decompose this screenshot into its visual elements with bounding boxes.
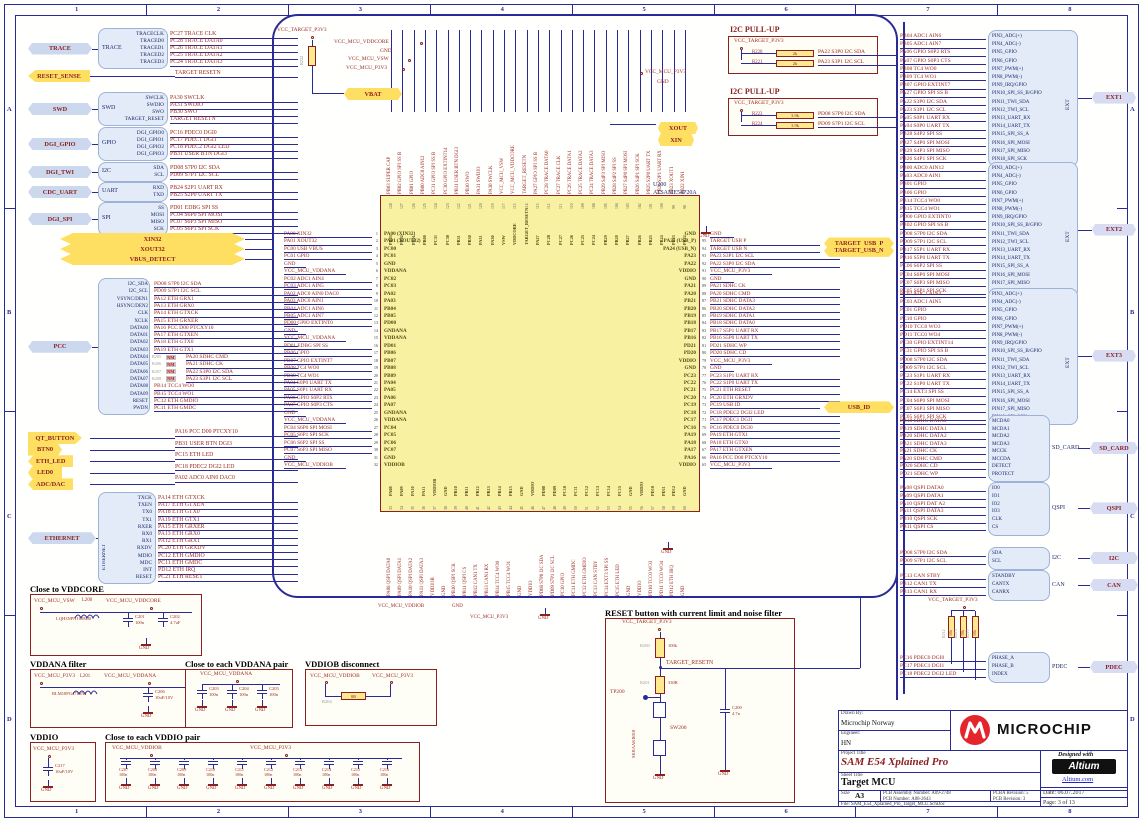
net-label: PA21 SDHC CK: [900, 448, 986, 455]
ext-pin-label: PIN10_SPI_SS_B/GPIO: [992, 91, 1042, 96]
ext-pin-label: PIN6_GPIO: [992, 317, 1017, 322]
resistor[interactable]: 3.9k: [776, 112, 814, 119]
wire: [325, 696, 341, 697]
zone-tick: [146, 4, 147, 15]
pin-number: 110: [571, 197, 575, 209]
pin-number: 91: [702, 269, 706, 273]
conn-pin-label: IO3: [992, 509, 1000, 514]
rail-terminal: [420, 42, 423, 45]
pin-number: 98: [684, 197, 688, 209]
net-label: PC24 TRACE DATA3: [170, 59, 298, 67]
vertical-net-label: VCC_MCU_VSW: [501, 112, 506, 194]
mcu-pin-name: PC04: [384, 426, 396, 431]
gnd-label: GND: [225, 708, 235, 713]
net-label: PC03 ADC1 AIN5: [900, 299, 986, 306]
ext-pin-label: PIN13_UART_RX: [992, 116, 1030, 121]
net-label: PA06 GPIO S0P2 RTS: [900, 49, 986, 56]
net-label: PB21 SDHC DATA3: [710, 298, 840, 305]
resistor-ref: R207: [152, 370, 161, 374]
mcu-pin-name: PB10: [454, 462, 458, 496]
flag-qt-button[interactable]: QT_BUTTON: [28, 432, 82, 444]
zone-tick: [288, 4, 289, 15]
resistor[interactable]: 2k: [776, 50, 814, 57]
pin-name: SCL: [100, 173, 164, 179]
mcu-pin-name: PA31: [479, 211, 483, 245]
wire: [213, 758, 214, 760]
pin-number: 58: [663, 498, 667, 510]
pin-number: 48: [554, 498, 558, 510]
pin-number: 94: [702, 247, 706, 251]
mcu-pin-name: PB30: [468, 211, 472, 245]
mcu-pin-name: PC23: [638, 374, 696, 379]
flag-btn0[interactable]: BTN0: [28, 444, 62, 456]
vertical-net-label: PA11 QSPI DATA3: [421, 516, 426, 596]
wire: [128, 622, 129, 627]
power-rail-label: VCC_MCU_VDDANA: [200, 672, 252, 678]
mcu-pin-name: VDDIO: [638, 359, 696, 364]
power-rail-label: VCC_MCU_VDDCORE: [106, 599, 161, 605]
pin-name: DATA05: [98, 362, 148, 367]
net-label: PB05 ADC1 AIN7: [900, 41, 986, 48]
wire: [245, 239, 272, 240]
net-label: PA19 ETH GTX1: [710, 432, 840, 439]
resistor[interactable]: 0R: [341, 692, 366, 700]
mcu-pin-name: PB07: [384, 359, 396, 364]
net-label: PB29 S4P3 SPI MISO: [900, 148, 986, 155]
vertical-net-label: PB02 GPIO SPI SS B: [399, 112, 404, 194]
switch[interactable]: [653, 702, 666, 718]
pin-name: DATA04: [98, 355, 148, 360]
resistor[interactable]: [308, 46, 316, 66]
vertical-net-label: TARGET_RESETN: [524, 112, 529, 194]
vertical-net-label: PA10 QSPI DATA2: [410, 516, 415, 596]
vertical-net-label: GND: [628, 516, 633, 596]
net-label: PA17 ETH GTXEN: [154, 332, 298, 339]
net-label: PB07 GPIO EXTINT7: [900, 82, 986, 89]
capacitor-ref: C206: [155, 690, 165, 695]
resistor[interactable]: [655, 676, 665, 694]
vertical-net-label: PC31 GPIO SPI SS B: [433, 112, 438, 194]
pin-number: 109: [582, 197, 586, 209]
mcu-pin-name: PD21: [638, 344, 696, 349]
wire: [184, 758, 185, 760]
resistor-value: 100k: [668, 644, 677, 649]
net-label: PB28 S4P2 SPI SS: [900, 131, 986, 138]
bus-line: [896, 560, 898, 700]
flag-adc-dac[interactable]: ADC/DAC: [28, 478, 73, 490]
net-label: PA22 S3P0 I2C SDA: [900, 99, 986, 106]
capacitor-ref: C204: [239, 687, 249, 692]
vertical-net-label: PC26 TRACE DATA1: [569, 112, 574, 194]
wire: [390, 684, 391, 696]
wire: [266, 761, 276, 762]
wire: [143, 693, 153, 694]
vertical-net-label: PA30 SWCLK: [490, 112, 495, 194]
wire: [242, 758, 243, 760]
pin-name: TRACED2: [100, 53, 164, 59]
pin-name: MDC: [104, 561, 152, 567]
pin-name: INT: [104, 568, 152, 574]
net-label: PB06 GPIO: [900, 190, 986, 197]
net-label: VCC_MCU_VDDANA: [284, 417, 346, 424]
wire: [1078, 667, 1090, 668]
pin-number: 24: [370, 403, 378, 407]
vertical-net-label: PC13 CAN STBY: [595, 516, 600, 596]
pin-number: 77: [702, 374, 706, 378]
ext-pin-label: PIN11_TWI_SDA: [992, 100, 1029, 105]
ext-pin-label: PIN6_GPIO: [992, 191, 1017, 196]
conn-pin-label: CANTX: [992, 582, 1009, 587]
net-label: PB00 ADC0 AIN12: [900, 165, 986, 172]
switch-part: SKRAAKB010: [632, 700, 637, 758]
ext-pin-label: PIN3_ADC(+): [992, 292, 1022, 297]
mcu-pin-name: PC19: [638, 403, 696, 408]
net-label: PA01 XOUT32: [284, 238, 372, 245]
flag-pcc[interactable]: PCC: [28, 341, 92, 353]
net-label: GND: [710, 231, 734, 238]
mcu-pin-name: PC18: [638, 411, 696, 416]
net-label: PA02 ADC0 AIN0 DAC0: [175, 475, 298, 483]
mcu-pin-name: PA10: [411, 462, 415, 496]
wire: [741, 63, 776, 64]
wire: [527, 30, 528, 112]
flag-i2c[interactable]: I2C: [1090, 552, 1138, 564]
flag-xout[interactable]: XOUT: [658, 122, 698, 134]
wire: [414, 30, 415, 112]
mcu-pin-name: PC30: [446, 211, 450, 245]
flag-led0[interactable]: LED0: [28, 467, 62, 479]
power-rail-label: VCC_TARGET_P3V3: [622, 620, 672, 626]
pin-number: 43: [499, 498, 503, 510]
vertical-net-label: PD08 S7P0 I2C SDA: [541, 516, 546, 596]
resistor[interactable]: 2k: [776, 60, 814, 67]
vertical-net-label: PA08 QSPI DATA0: [388, 516, 393, 596]
mcu-pin-name: PC22: [638, 381, 696, 386]
vertical-net-label: PD11 TCC0 WO4: [661, 516, 666, 596]
pin-name: TX0: [104, 510, 152, 516]
conn-pin-label: SDA: [992, 551, 1002, 556]
mcu-pin-name: PC12: [585, 462, 589, 496]
vertical-net-label: PC28 TRACE DATA0: [546, 112, 551, 194]
power-rail-label: VCC_MCU_VDDIOB: [112, 746, 162, 752]
gnd-label: GND: [255, 708, 265, 713]
flag-dgi-twi[interactable]: DGI_TWI: [28, 166, 92, 178]
wire: [741, 115, 776, 116]
pin-number: 40: [466, 498, 470, 510]
ext-side-label: EXT: [1066, 90, 1072, 110]
flag-swd[interactable]: SWD: [28, 103, 92, 115]
net-label: PB16 S5P0 UART TX: [900, 255, 986, 262]
flag-pdec[interactable]: PDEC: [1090, 661, 1138, 673]
resistor-ref: R204: [322, 700, 332, 705]
pin-name: DGI_GPIO0: [100, 131, 164, 137]
pin-name: TRACED1: [100, 46, 164, 52]
zone-row-label: D: [7, 716, 12, 723]
wire: [561, 30, 562, 112]
flag-dgi-gpio[interactable]: DGI_GPIO: [28, 138, 92, 150]
mcu-pin-name: PA07: [384, 403, 396, 408]
conn-pin-label: PHASE_A: [992, 656, 1014, 661]
net-label: PA15 ETH GRXER: [154, 318, 298, 325]
wire: [448, 30, 449, 112]
conn-pin-label: MCDA0: [992, 419, 1010, 424]
capacitor-ref: C217: [55, 764, 65, 769]
mcu-pin-name: GND: [629, 462, 633, 496]
net-label: PA19 ETH GTX1: [154, 347, 298, 354]
ext-pin-label: PIN14_UART_TX: [992, 124, 1030, 129]
mcu-pin-name: PB29: [604, 211, 608, 245]
switch[interactable]: [653, 740, 666, 756]
flag-sd-card[interactable]: SD_CARD: [1090, 442, 1138, 454]
capacitor-value: 100n: [351, 773, 359, 777]
pin-number: 25: [370, 411, 378, 415]
net-label: PC17 PDEC1 DGI1: [710, 417, 840, 424]
net-label: PB18 SDHC DATA0: [900, 418, 986, 425]
pin-number: 112: [548, 197, 552, 209]
pin-name: MISO: [100, 220, 164, 226]
zone-col-label: 8: [1068, 808, 1071, 815]
net-label: PA09 QSPI DATA1: [900, 493, 986, 500]
wire: [123, 618, 133, 619]
resistor-ref: R200: [640, 644, 650, 649]
vertical-net-label: PC25 TRACE DATA2: [580, 112, 585, 194]
ext-pin-label: PIN16_SPI_MOSI: [992, 141, 1030, 146]
net-label: PC15 ETH LED: [175, 452, 298, 460]
zone-tick: [4, 615, 15, 616]
zone-tick: [997, 807, 998, 818]
vertical-net-label: PC10 GPIO: [562, 516, 567, 596]
capacitor-value: 100n: [269, 693, 278, 698]
pin-number: 111: [560, 197, 564, 209]
rail-terminal: [40, 682, 43, 685]
pin-number: 32: [370, 463, 378, 467]
net-label: TARGET USB N: [710, 246, 820, 253]
net-label: PD08 S7P0 I2C SDA: [900, 550, 986, 557]
flag-reset-sense[interactable]: RESET_SENSE: [28, 70, 90, 82]
net-label: PB20 SDHC DATA2: [900, 433, 986, 440]
pin-number: 103: [627, 197, 631, 209]
flag-ethernet[interactable]: ETHERNET: [28, 532, 96, 544]
wire: [353, 761, 363, 762]
net-label: PC11 ETH GMDC: [154, 405, 298, 412]
ext-pin-label: PIN14_UART_TX: [992, 382, 1030, 387]
net-label: PA11 QSPI DATA3: [900, 508, 986, 515]
capacitor-value: 100n: [148, 773, 156, 777]
vertical-net-label: PA31 SWDIO: [478, 112, 483, 194]
net-label: PC16 PDEC0 DGI0: [900, 655, 986, 662]
mcu-pin-name: PB02: [400, 211, 404, 245]
pin-number: 16: [370, 344, 378, 348]
pin-number: 87: [702, 299, 706, 303]
flag-dgi-spi[interactable]: DGI_SPI: [28, 213, 92, 225]
net-label: PC18 PDEC2 DGI2 LED: [175, 464, 298, 472]
net-label: VCC_MCU_P3V3: [710, 358, 772, 365]
wire: [1078, 585, 1090, 586]
wire: [382, 761, 392, 762]
conn-pin-label: MCDA2: [992, 434, 1010, 439]
mcu-pin-name: PC25: [581, 211, 585, 245]
wire: [628, 30, 629, 112]
net-label: PC16 PDEC0 DGI0: [710, 425, 840, 432]
net-label: TARGET RESETN: [175, 70, 298, 78]
flag-vbus-detect[interactable]: VBUS_DETECT: [60, 253, 245, 265]
mcu-pin-name: PA30: [491, 211, 495, 245]
zone-tick: [572, 807, 573, 818]
gnd-label: GND: [119, 786, 129, 791]
pin-number: 45: [521, 498, 525, 510]
resistor-ref: R212: [942, 616, 946, 638]
flag-ext1[interactable]: EXT1: [1092, 92, 1136, 104]
flag-trace[interactable]: TRACE: [28, 43, 92, 55]
mcu-pin-name: VDDIOB: [433, 462, 437, 496]
net-label: GND: [710, 365, 734, 372]
gnd-label: GND: [653, 776, 663, 781]
conn-label: PDEC: [1052, 664, 1067, 670]
mcu-pin-name: PA16: [638, 456, 696, 461]
resistor[interactable]: [655, 638, 665, 658]
resistor-ref: R205: [152, 355, 161, 359]
zone-col-label: 7: [926, 6, 929, 13]
net-label: PA23 S3P1 I2C SCL: [818, 59, 897, 66]
mcu-pin-name: VDDANA: [384, 336, 406, 341]
mcu-pin-name: PA08: [389, 462, 393, 496]
capacitor-value: 100n: [239, 693, 248, 698]
mcu-pin-name: PB17: [638, 329, 696, 334]
zone-col-label: 1: [75, 808, 78, 815]
capacitor-value: 10uF/10V: [55, 770, 73, 775]
mcu-pin-name: PB15: [509, 462, 513, 496]
conn-label: CAN: [1052, 582, 1065, 588]
wire: [92, 219, 98, 220]
conn-pin-label: STANDBY: [992, 574, 1015, 579]
block-title: Close to VDDCORE: [30, 585, 104, 594]
flag-xin[interactable]: XIN: [658, 134, 694, 146]
ext-pin-label: PIN7_PWM(+): [992, 199, 1023, 204]
flag-ext3[interactable]: EXT3: [1092, 350, 1136, 362]
zone-col-label: 8: [1068, 6, 1071, 13]
pin-number: 86: [702, 307, 706, 311]
net-label: PA13 ETH GRX0: [154, 303, 298, 310]
net-label: PB04 ADC1 AIN6: [900, 33, 986, 40]
resistor-ref: R206: [152, 362, 161, 366]
vertical-net-label: PC12 ETH GMDIO: [584, 516, 589, 596]
flag-eth-led[interactable]: ETH_LED: [28, 455, 73, 467]
pin-name: RXER: [104, 525, 152, 531]
block-title: VDDIO: [30, 733, 58, 742]
net-label: PC01 GPIO: [900, 307, 986, 314]
pin-number: 124: [435, 197, 439, 209]
wire: [158, 618, 168, 619]
flag-cdc-uart[interactable]: CDC_UART: [28, 186, 92, 198]
pin-number: 11: [370, 307, 378, 311]
wire: [549, 30, 550, 112]
net-label: PD09 S7P1 I2C SCL: [818, 121, 897, 128]
mcu-pin-name: VDDIO: [640, 462, 644, 496]
wire: [92, 347, 98, 348]
gnd-label: GND: [322, 786, 332, 791]
pin-number: 5: [370, 262, 378, 266]
vertical-net-label: GND: [443, 516, 448, 596]
conn-pin-label: PROTECT: [992, 472, 1014, 477]
wire: [366, 696, 391, 697]
net-label: PB21 SDHC DATA3: [900, 441, 986, 448]
wire: [197, 690, 207, 691]
power-rail-label: VCC_MCU_VDDANA: [104, 674, 156, 680]
pin-number: 117: [503, 197, 507, 209]
mcu-pin-name: VSW: [502, 211, 506, 245]
net-label: PC05 S6P1 SPI SCK: [170, 226, 298, 234]
pin-number: 28: [370, 433, 378, 437]
wire: [155, 758, 156, 760]
rail-terminal: [285, 754, 288, 757]
gnd-label: GND: [177, 786, 187, 791]
mcu-pin-name: PA09: [400, 462, 404, 496]
wire: [661, 668, 860, 669]
wire: [860, 598, 861, 668]
net-label: PC18 PDEC2 DGI2 LED: [900, 671, 986, 678]
pin-number: 14: [370, 329, 378, 333]
vertical-net-label: PD12 ETH IRQ: [671, 516, 676, 596]
pin-name: DGI_GPIO3: [100, 152, 164, 158]
net-label: PC30 GPIO EXTINT14: [900, 340, 986, 347]
pin-number: 88: [702, 292, 706, 296]
net-label: PA05 S0P1 UART RX: [900, 115, 986, 122]
rail-terminal: [148, 682, 151, 685]
pin-number: 104: [616, 197, 620, 209]
flag-vbat[interactable]: VBAT: [344, 88, 402, 100]
wire: [324, 761, 334, 762]
pin-number: 93: [702, 254, 706, 258]
wire: [126, 758, 127, 760]
net-label: PD08 S7P0 I2C SDA: [900, 231, 986, 238]
schematic-canvas: Drawn By: Microchip Norway Engineer: HN …: [0, 0, 1143, 822]
wire: [470, 30, 471, 112]
pin-number: 30: [370, 448, 378, 452]
mcu-pin-name: GNDANA: [384, 411, 407, 416]
mcu-pin-name: PD00: [384, 321, 396, 326]
net-label: PA22 S3P0 I2C SDA: [186, 369, 298, 376]
wire: [648, 697, 660, 698]
pin-number: 9: [370, 292, 378, 296]
ext-pin-label: PIN9_IRQ/GPIO: [992, 341, 1027, 346]
wire: [163, 622, 164, 627]
ext-pin-label: PIN4_ADC(-): [992, 174, 1021, 179]
flag-ext2[interactable]: EXT2: [1092, 224, 1136, 236]
power-rail-label: VCC_MCU_P3V3: [372, 674, 413, 680]
vertical-net-label: PB12 CAN1 TX: [475, 516, 480, 596]
wire: [148, 697, 149, 702]
net-label: PD08 S7P0 I2C SDA: [154, 281, 298, 288]
capacitor-value: 100n: [322, 773, 330, 777]
wire: [257, 690, 267, 691]
zone-tick: [997, 4, 998, 15]
flag-can[interactable]: CAN: [1090, 579, 1138, 591]
mcu-pin-name: PC06: [384, 441, 396, 446]
wire: [90, 461, 175, 462]
wire: [436, 30, 437, 112]
resistor[interactable]: 3.9k: [776, 122, 814, 129]
wire: [40, 687, 192, 688]
block-title: I2C PULL-UP: [730, 88, 780, 96]
pin-number: 12: [370, 314, 378, 318]
net-label: PA23 S3P1 I2C SCL: [186, 376, 298, 383]
ext-pin-label: PIN8_PWM(-): [992, 75, 1022, 80]
wire: [481, 30, 482, 112]
rail-terminal: [150, 607, 153, 610]
net-label: PB25 S2P0 UART TX: [170, 192, 298, 200]
flag-qspi[interactable]: QSPI: [1090, 502, 1138, 514]
capacitor-ref: C200: [732, 706, 742, 711]
